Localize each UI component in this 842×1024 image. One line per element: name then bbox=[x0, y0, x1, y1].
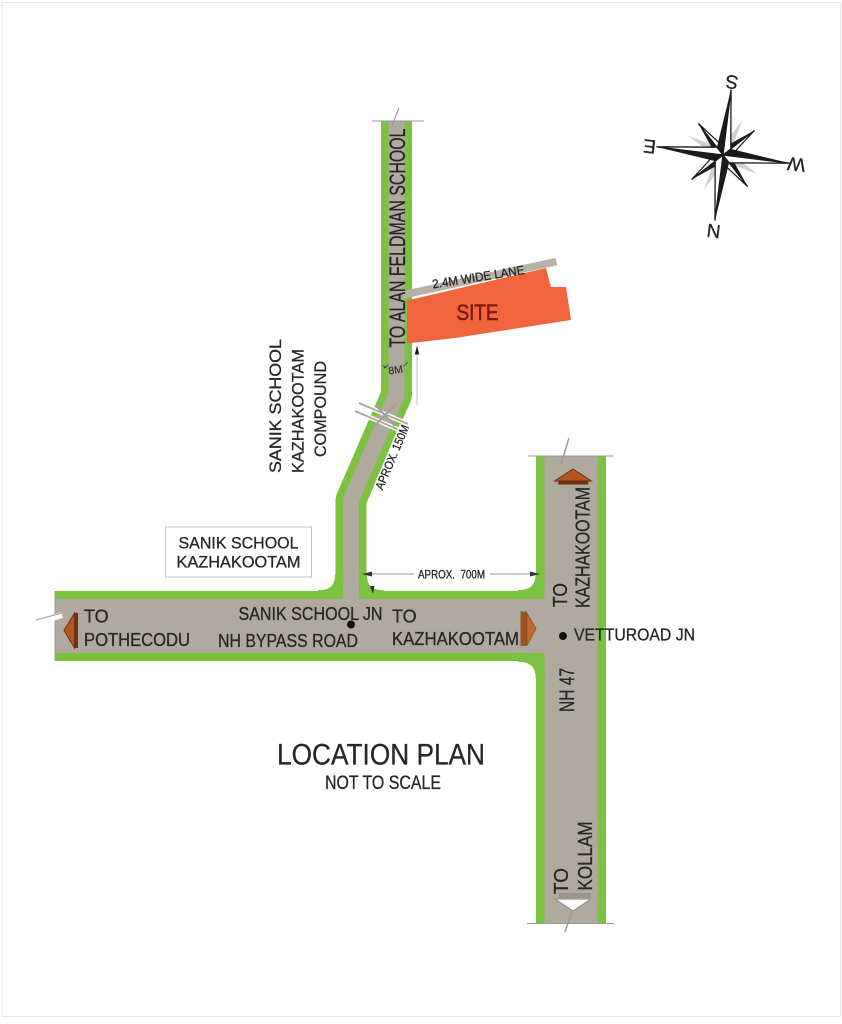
svg-text:SANIK SCHOOL: SANIK SCHOOL bbox=[266, 339, 285, 473]
svg-text:S: S bbox=[725, 70, 740, 92]
svg-text:LOCATION PLAN: LOCATION PLAN bbox=[277, 739, 485, 772]
svg-text:8M: 8M bbox=[388, 364, 404, 378]
svg-text:E: E bbox=[642, 134, 657, 156]
svg-text:SITE: SITE bbox=[457, 300, 499, 325]
svg-text:NOT TO SCALE: NOT TO SCALE bbox=[325, 772, 441, 794]
svg-text:TO: TO bbox=[551, 868, 573, 894]
svg-text:KAZHAKOOTAM: KAZHAKOOTAM bbox=[573, 487, 595, 608]
svg-text:N: N bbox=[706, 219, 722, 242]
svg-text:COMPOUND: COMPOUND bbox=[311, 361, 330, 457]
svg-text:KAZHAKOOTAM: KAZHAKOOTAM bbox=[392, 629, 519, 649]
svg-text:NH BYPASS ROAD: NH BYPASS ROAD bbox=[218, 631, 358, 651]
svg-text:TO: TO bbox=[392, 607, 417, 627]
svg-text:POTHECODU: POTHECODU bbox=[84, 630, 190, 650]
svg-text:KAZHAKOOTAM: KAZHAKOOTAM bbox=[177, 553, 301, 572]
svg-text:KOLLAM: KOLLAM bbox=[575, 822, 597, 891]
svg-text:TO: TO bbox=[550, 583, 572, 607]
svg-text:TO ALAN FELDMAN SCHOOL: TO ALAN FELDMAN SCHOOL bbox=[385, 129, 410, 348]
svg-text:SANIK SCHOOL: SANIK SCHOOL bbox=[179, 534, 299, 553]
svg-text:SANIK SCHOOL JN: SANIK SCHOOL JN bbox=[239, 604, 383, 624]
svg-text:APROX. 700M: APROX. 700M bbox=[418, 570, 485, 582]
svg-text:KAZHAKOOTAM: KAZHAKOOTAM bbox=[289, 349, 308, 473]
svg-text:VETTUROAD JN: VETTUROAD JN bbox=[574, 625, 695, 645]
svg-text:NH 47: NH 47 bbox=[556, 668, 579, 712]
svg-text:W: W bbox=[786, 152, 806, 175]
svg-text:TO: TO bbox=[84, 607, 109, 627]
